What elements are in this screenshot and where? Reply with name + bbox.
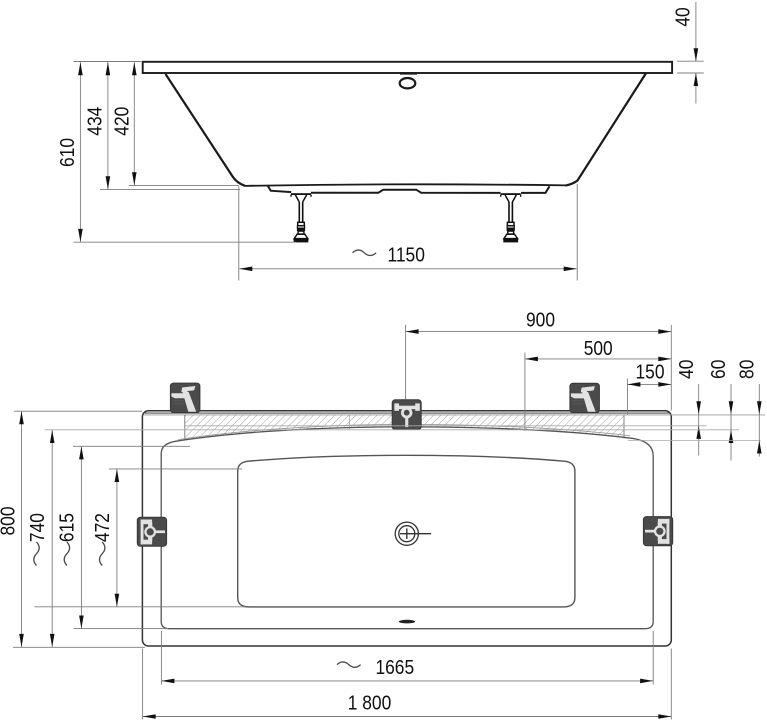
svg-text:472: 472 <box>91 513 113 542</box>
svg-text:1 800: 1 800 <box>348 691 392 713</box>
svg-text:1665: 1665 <box>375 656 414 678</box>
svg-text:60: 60 <box>707 360 729 379</box>
svg-text:800: 800 <box>0 506 19 535</box>
svg-text:900: 900 <box>526 308 555 330</box>
svg-text:610: 610 <box>56 138 78 167</box>
svg-text:740: 740 <box>26 513 48 542</box>
svg-text:615: 615 <box>55 513 77 542</box>
svg-text:434: 434 <box>84 107 106 136</box>
svg-text:1150: 1150 <box>387 243 424 265</box>
svg-text:40: 40 <box>671 7 693 26</box>
svg-text:80: 80 <box>735 360 757 379</box>
svg-text:150: 150 <box>635 361 664 383</box>
svg-text:420: 420 <box>110 107 132 136</box>
svg-text:40: 40 <box>675 360 697 379</box>
svg-text:500: 500 <box>584 337 613 359</box>
